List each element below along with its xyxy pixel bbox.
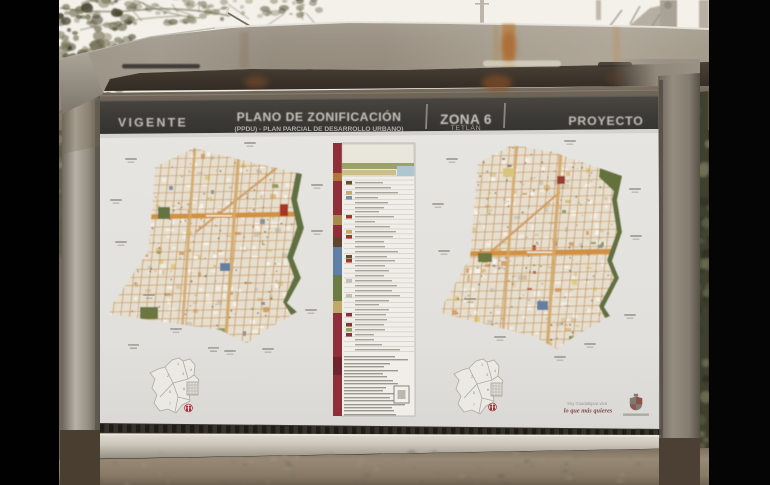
svg-text:PLANO DE ZONIFICACIÓN: PLANO DE ZONIFICACIÓN [237,109,402,124]
svg-text:2: 2 [167,374,169,378]
svg-text:3: 3 [182,372,184,376]
svg-text:PROYECTO: PROYECTO [568,114,643,128]
svg-text:4: 4 [190,368,192,372]
svg-text:5: 5 [169,390,171,394]
svg-text:3: 3 [486,373,488,377]
svg-text:Soy Guadalajara viva: Soy Guadalajara viva [567,401,607,406]
svg-text:1: 1 [177,362,179,366]
svg-text:7: 7 [169,402,171,406]
svg-text:1: 1 [481,363,483,367]
svg-text:5: 5 [473,391,475,395]
svg-text:4: 4 [494,369,496,373]
svg-text:2: 2 [471,375,473,379]
svg-text:VIGENTE: VIGENTE [118,116,188,130]
svg-text:6: 6 [487,388,489,392]
svg-text:lo que más quieres: lo que más quieres [564,408,613,415]
svg-text:7: 7 [473,403,475,407]
svg-text:6: 6 [183,387,185,391]
